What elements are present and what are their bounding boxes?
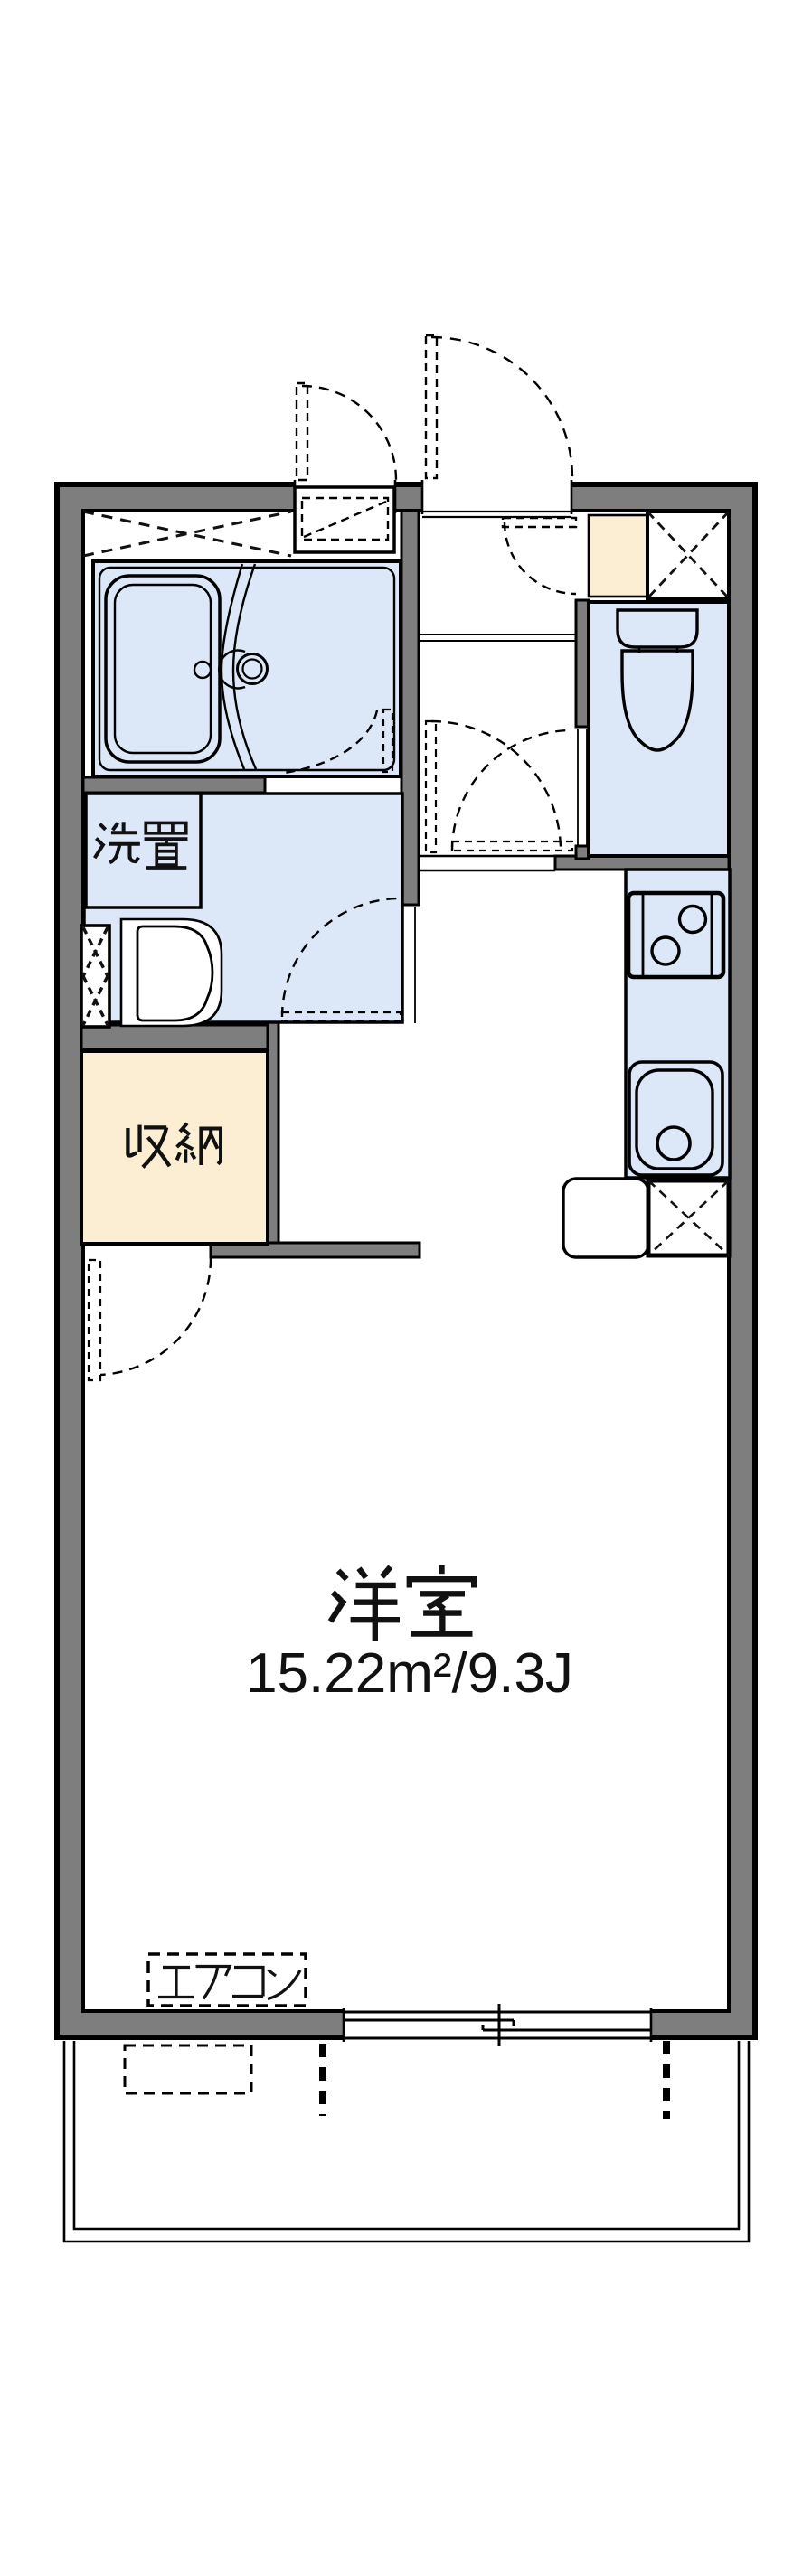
svg-text:15.22m²/9.3J: 15.22m²/9.3J [246, 1642, 573, 1705]
